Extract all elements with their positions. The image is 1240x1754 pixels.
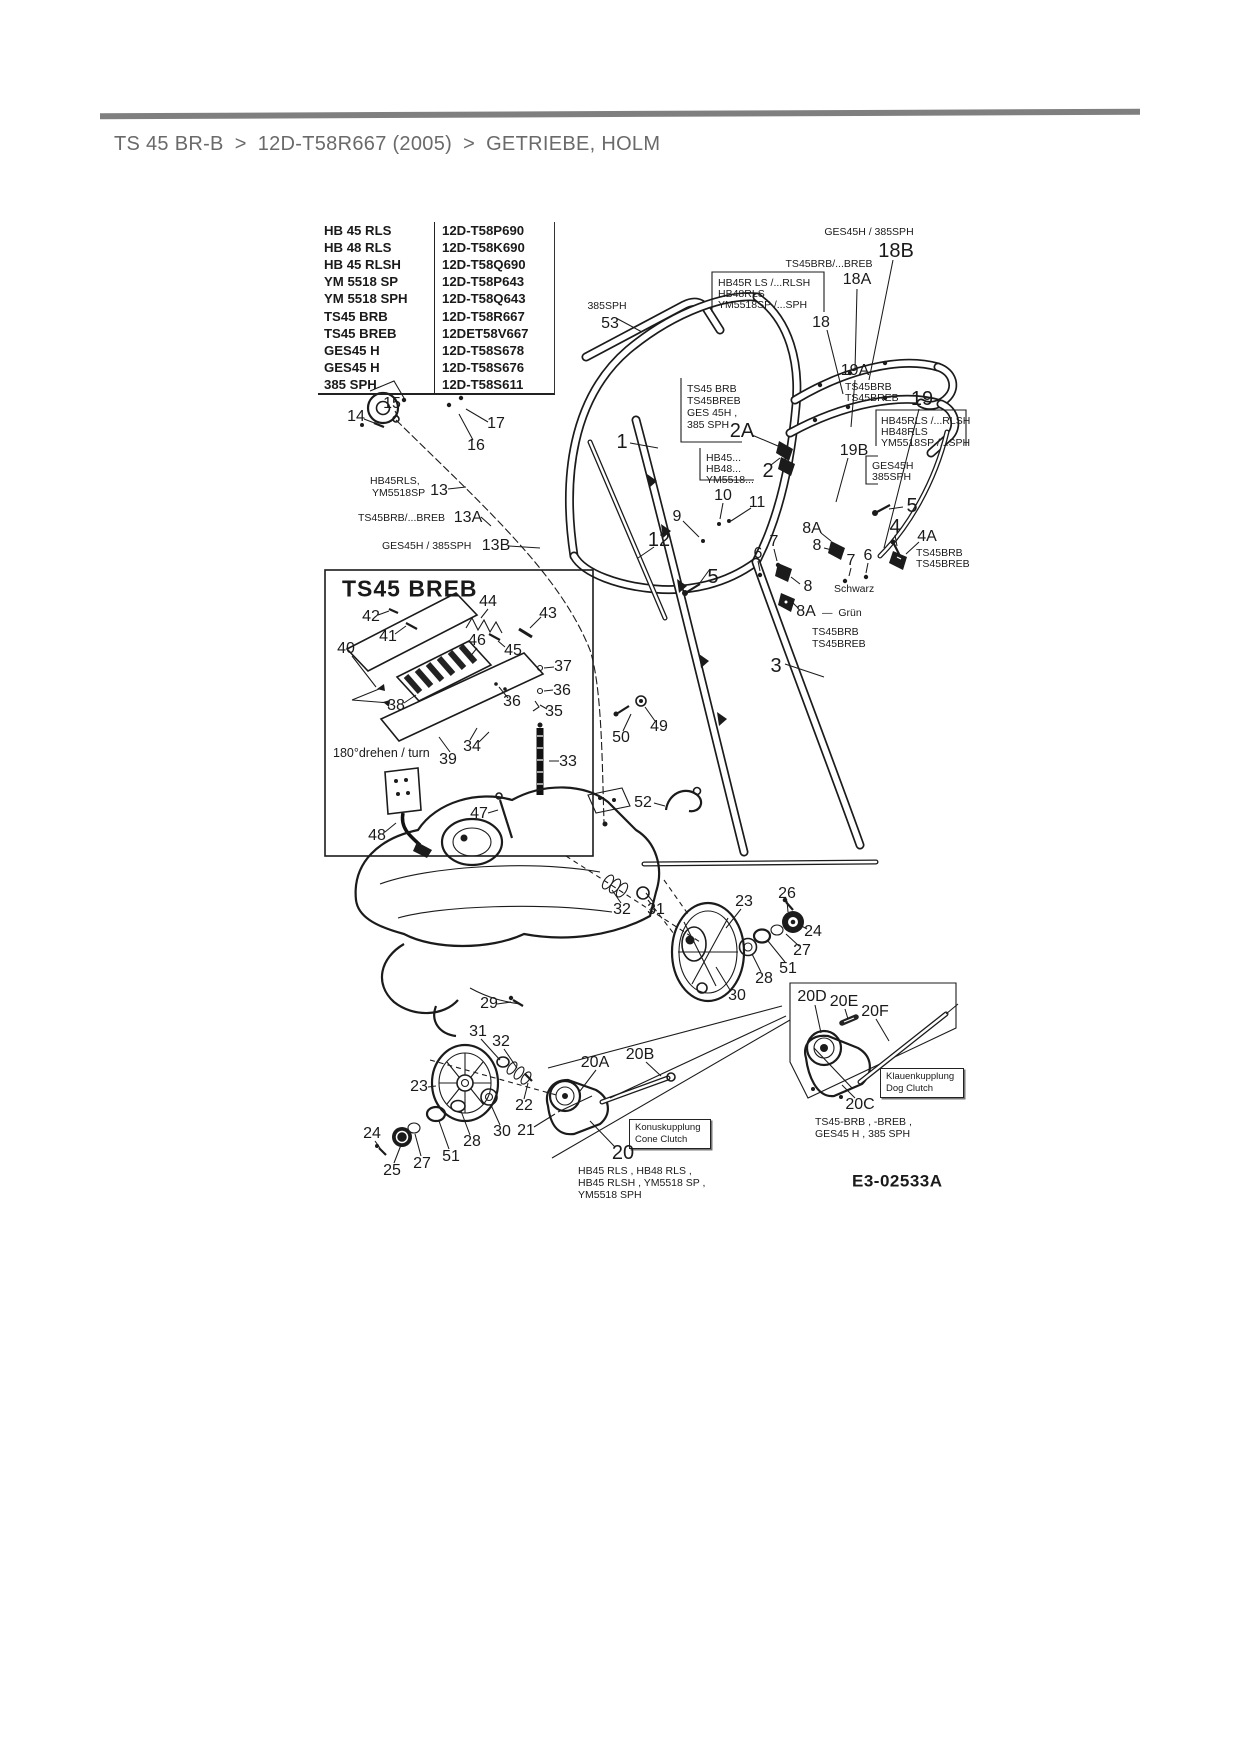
leader-lines [352,260,919,1163]
model-note: GES45H / 385SPH [382,541,471,552]
part-callout: 19B [840,443,868,459]
part-callout: 1 [616,432,627,452]
part-callout: 46 [468,633,486,649]
cone-clutch-box: Konuskupplung Cone Clutch [629,1119,711,1149]
model-note: TS45-BRB , -BREB , [815,1117,912,1128]
model-note: TS45BREB [687,396,741,407]
cone-clutch-label-en: Cone Clutch [635,1134,705,1146]
part-callout: 51 [442,1149,460,1165]
part-callout: 53 [601,316,619,332]
part-callout: 47 [470,806,488,822]
part-callout: 51 [779,961,797,977]
model-note: TS45BRB [845,382,892,393]
model-note: GES45H / 385SPH [824,227,913,238]
model-note: HB45 RLS , HB48 RLS , [578,1166,692,1177]
model-note: HB45 RLSH , YM5518 SP , [578,1178,705,1189]
part-callout: 7 [770,534,779,550]
artno-cell: 12D-T58K690 [435,240,525,255]
model-cell: HB 48 RLS [318,239,435,256]
part-callout: 20C [845,1097,874,1113]
part-callout: 17 [487,416,505,432]
dog-clutch-box: Klauenkupplung Dog Clutch [880,1068,964,1098]
model-note: TS45 BRB [687,384,737,395]
model-table: HB 45 RLS12D-T58P690HB 48 RLS12D-T58K690… [318,222,555,395]
dog-clutch-label-de: Klauenkupplung [886,1071,958,1083]
part-callout: 13 [430,483,448,499]
model-note: TS45BREB [812,639,866,650]
artno-cell: 12D-T58S676 [435,360,524,375]
part-callout: 50 [612,730,630,746]
part-callout: 21 [517,1123,535,1139]
model-note: 385SPH [587,301,626,312]
table-row: HB 45 RLS12D-T58P690 [318,222,554,239]
part-callout: 8A [796,604,816,620]
artno-cell: 12DET58V667 [435,326,529,341]
artno-cell: 12D-T58P690 [435,223,524,238]
part-callout: 26 [778,886,796,902]
model-note: TS45BREB [845,393,899,404]
part-callout: 20A [581,1055,609,1071]
part-callout: 20D [797,989,826,1005]
model-note: GES45 H , 385 SPH [815,1129,910,1140]
part-callout: 30 [728,988,746,1004]
part-callout: 49 [650,719,668,735]
model-note: 385SPH [872,472,911,483]
part-callout: 11 [749,495,766,511]
model-note: TS45BRB [812,627,859,638]
table-row: TS45 BRB12D-T58R667 [318,307,554,324]
part-callout: 13B [482,538,510,554]
part-callout: 29 [480,996,498,1012]
model-note: YM5518... [706,475,754,486]
model-note: TS45BRB [916,548,963,559]
model-note: HB48RLS [718,289,765,300]
model-note: HB48... [706,464,741,475]
part-callout: 12 [648,530,670,550]
model-note: HB45R LS /...RLSH [718,278,810,289]
part-callout: 20 [612,1143,634,1163]
part-callout: 4 [889,517,900,537]
part-callout: 15 [383,396,401,412]
cone-clutch-label-de: Konuskupplung [635,1122,705,1134]
part-callout: 6 [864,548,873,564]
model-note: YM5518SP [372,488,425,499]
model-note: GES 45H , [687,408,737,419]
part-callout: 8 [813,538,822,554]
inset-title: TS45 BREB [342,578,478,601]
part-callout: 28 [755,971,773,987]
part-callout: 2A [730,421,754,441]
catalog-page: TS 45 BR-B>12D-T58R667 (2005)>GETRIEBE, … [0,0,1240,1754]
artno-cell: 12D-T58S678 [435,343,524,358]
rotate-note: 180°drehen / turn [333,747,430,760]
part-callout: 16 [467,438,485,454]
model-cell: HB 45 RLS [318,222,435,239]
model-note: YM5518 SPH [578,1190,642,1201]
part-callout: 9 [673,509,682,525]
table-row: GES45 H12D-T58S676 [318,359,554,376]
model-note: TS45BRB/...BREB [358,513,445,524]
part-callout: 8 [804,579,813,595]
part-callout: 41 [379,629,397,645]
part-callout: 30 [493,1124,511,1140]
part-callout: 20E [830,994,858,1010]
part-callout: 24 [363,1126,381,1142]
part-callout: 7 [847,553,856,569]
part-callout: 27 [413,1156,431,1172]
part-callout: 10 [714,488,732,504]
part-callout: 2 [762,461,773,481]
model-note: YM5518SP /...SPH [881,438,970,449]
model-cell: YM 5518 SP [318,273,435,290]
model-note: HB45RLS, [370,476,420,487]
dog-clutch-label-en: Dog Clutch [886,1083,958,1095]
model-note: HB48RLS [881,427,928,438]
model-note: HB45... [706,453,741,464]
model-note: 385 SPH [687,420,729,431]
part-callout: 5 [707,567,718,587]
part-callout: 3 [770,656,781,676]
part-callout: 5 [906,496,917,516]
part-callout: 4A [917,529,937,545]
table-row: TS45 BREB12DET58V667 [318,325,554,342]
model-cell: YM 5518 SPH [318,290,435,307]
part-callout: 40 [337,641,355,657]
table-row: HB 45 RLSH12D-T58Q690 [318,256,554,273]
artno-cell: 12D-T58Q690 [435,257,526,272]
model-note: — Grün [822,608,862,619]
table-row: YM 5518 SPH12D-T58Q643 [318,290,554,307]
table-row: YM 5518 SP12D-T58P643 [318,273,554,290]
part-callout: 14 [347,409,365,425]
part-callout: 8A [802,521,822,537]
table-row: 385 SPH12D-T58S611 [318,376,554,393]
model-cell: GES45 H [318,342,435,359]
part-callout: 28 [463,1134,481,1150]
part-callout: 48 [368,828,386,844]
part-callout: 39 [439,752,457,768]
part-callout: 32 [613,902,631,918]
table-row: HB 48 RLS12D-T58K690 [318,239,554,256]
part-callout: 23 [735,894,753,910]
model-cell: 385 SPH [318,376,435,393]
artno-cell: 12D-T58Q643 [435,291,526,306]
model-cell: TS45 BRB [318,307,435,324]
part-callout: 13A [454,510,482,526]
part-callout: 45 [504,643,522,659]
part-callout: 43 [539,606,557,622]
model-note: GES45H [872,461,913,472]
part-callout: 27 [793,943,811,959]
part-callout: 18A [843,272,871,288]
part-callout: 20F [861,1004,889,1020]
part-callout: 35 [545,704,563,720]
artno-cell: 12D-T58R667 [435,309,525,324]
part-callout: 23 [410,1079,428,1095]
model-note: TS45BREB [916,559,970,570]
model-note: Schwarz [834,584,874,595]
artno-cell: 12D-T58S611 [435,377,523,392]
part-callout: 6 [754,546,763,562]
part-callout: 18 [812,315,830,331]
part-callout: 36 [503,694,521,710]
part-callout: 19 [911,389,933,409]
exploded-diagram-art [0,0,1240,1754]
part-callout: 37 [554,659,572,675]
part-callout: 34 [463,739,481,755]
part-callout: 22 [515,1098,533,1114]
table-row: GES45 H12D-T58S678 [318,342,554,359]
part-callout: 33 [559,754,577,770]
part-callout: 44 [479,594,497,610]
part-callout: 19A [841,363,869,379]
part-callout: 24 [804,924,822,940]
part-callout: 18B [878,241,914,261]
part-callout: 20B [626,1047,654,1063]
part-callout: 42 [362,609,380,625]
part-callout: 38 [387,698,405,714]
part-callout: 52 [634,795,652,811]
model-cell: GES45 H [318,359,435,376]
part-callout: 32 [492,1034,510,1050]
diagram-id: E3-02533A [852,1173,943,1190]
model-note: TS45BRB/...BREB [786,259,873,270]
model-cell: TS45 BREB [318,325,435,342]
model-note: HB45RLS /...RLSH [881,416,970,427]
part-callout: 25 [383,1163,401,1179]
part-callout: 36 [553,683,571,699]
model-note: YM5518SP /...SPH [718,300,807,311]
model-cell: HB 45 RLSH [318,256,435,273]
part-callout: 31 [647,902,665,918]
artno-cell: 12D-T58P643 [435,274,524,289]
part-callout: 31 [469,1024,487,1040]
